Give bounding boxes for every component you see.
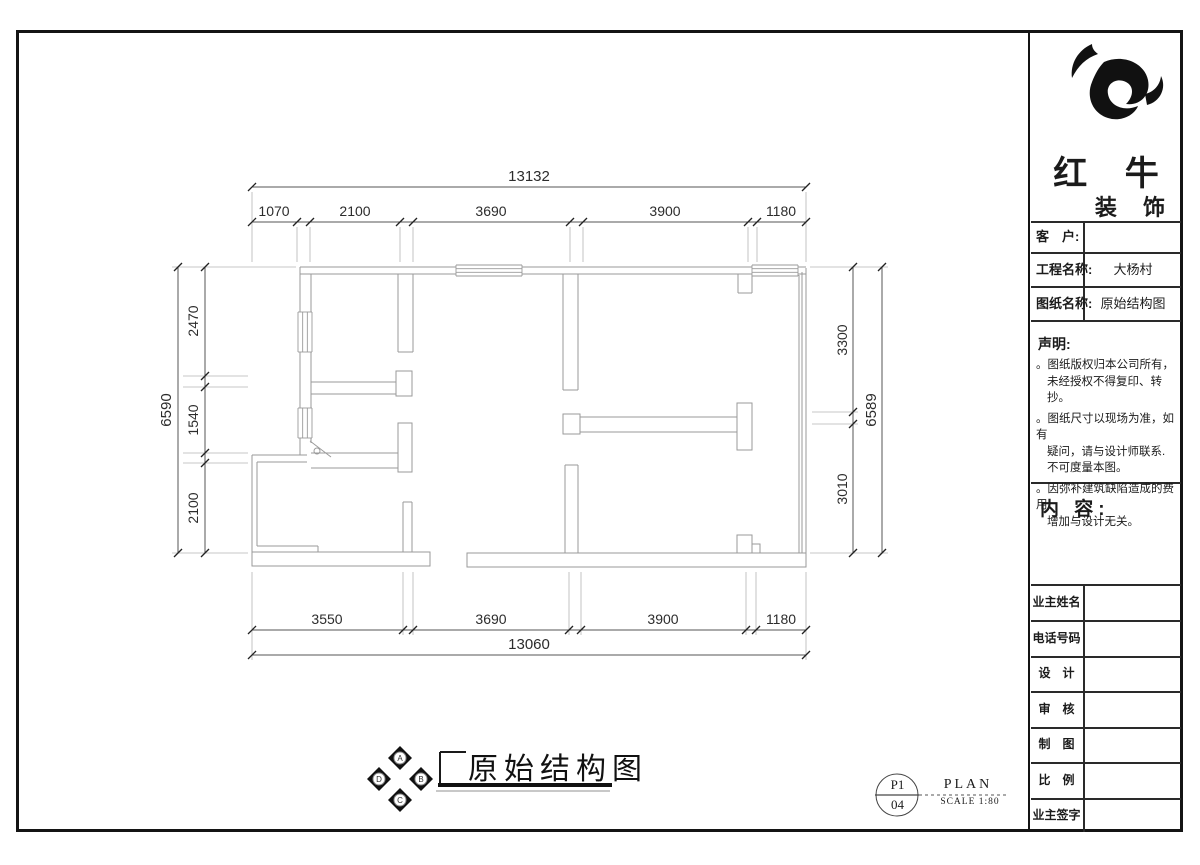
statement-line: 不可度量本图。 <box>1036 460 1182 477</box>
scale-label: SCALE 1:80 <box>938 797 1002 807</box>
company-logo <box>1048 40 1168 144</box>
compass-letter-b: B <box>418 775 423 784</box>
compass-symbol: A B C D <box>367 743 433 813</box>
statement-line: 未经授权不得复印、转抄。 <box>1036 374 1182 407</box>
sheet-number-bottom: 04 <box>884 797 911 813</box>
content-label: 内 容: <box>1040 494 1110 521</box>
plan-label: PLAN <box>938 777 998 793</box>
scale-row-label: 比 例 <box>1030 762 1083 798</box>
compass-letter-a: A <box>397 754 403 763</box>
reviewer-label: 审 核 <box>1030 691 1083 727</box>
brand-name: 红 牛 <box>1031 146 1181 195</box>
designer-label: 设 计 <box>1030 656 1083 691</box>
client-label: 客 户: <box>1036 222 1079 252</box>
owner-name-label: 业主姓名 <box>1030 585 1083 620</box>
statement-line: 。图纸尺寸以现场为准，如有 <box>1036 411 1182 444</box>
draftsman-label: 制 图 <box>1030 727 1083 762</box>
brand-subname: 装 饰 <box>1031 190 1175 222</box>
sheet-name-label: 图纸名称: <box>1036 287 1092 320</box>
phone-number-label: 电话号码 <box>1030 620 1083 656</box>
compass-letter-c: C <box>397 796 403 805</box>
divider <box>1083 584 1085 832</box>
sheet-number-top: P1 <box>884 777 911 793</box>
client-value <box>1085 222 1181 252</box>
owner-signature-label: 业主签字 <box>1030 798 1083 833</box>
project-name-label: 工程名称: <box>1036 253 1092 286</box>
statement-line: 。图纸版权归本公司所有， <box>1036 357 1182 374</box>
project-name-value: 大杨村 <box>1085 253 1181 286</box>
sheet-border <box>16 30 1183 832</box>
compass-letter-d: D <box>376 775 382 784</box>
sheet-name-value: 原始结构图 <box>1085 287 1181 320</box>
drawing-title: 原始结构图 <box>468 744 648 788</box>
divider <box>1031 320 1181 322</box>
statement-title: 声明: <box>1038 334 1071 354</box>
statement-line: 疑问，请与设计师联系. <box>1036 444 1182 461</box>
